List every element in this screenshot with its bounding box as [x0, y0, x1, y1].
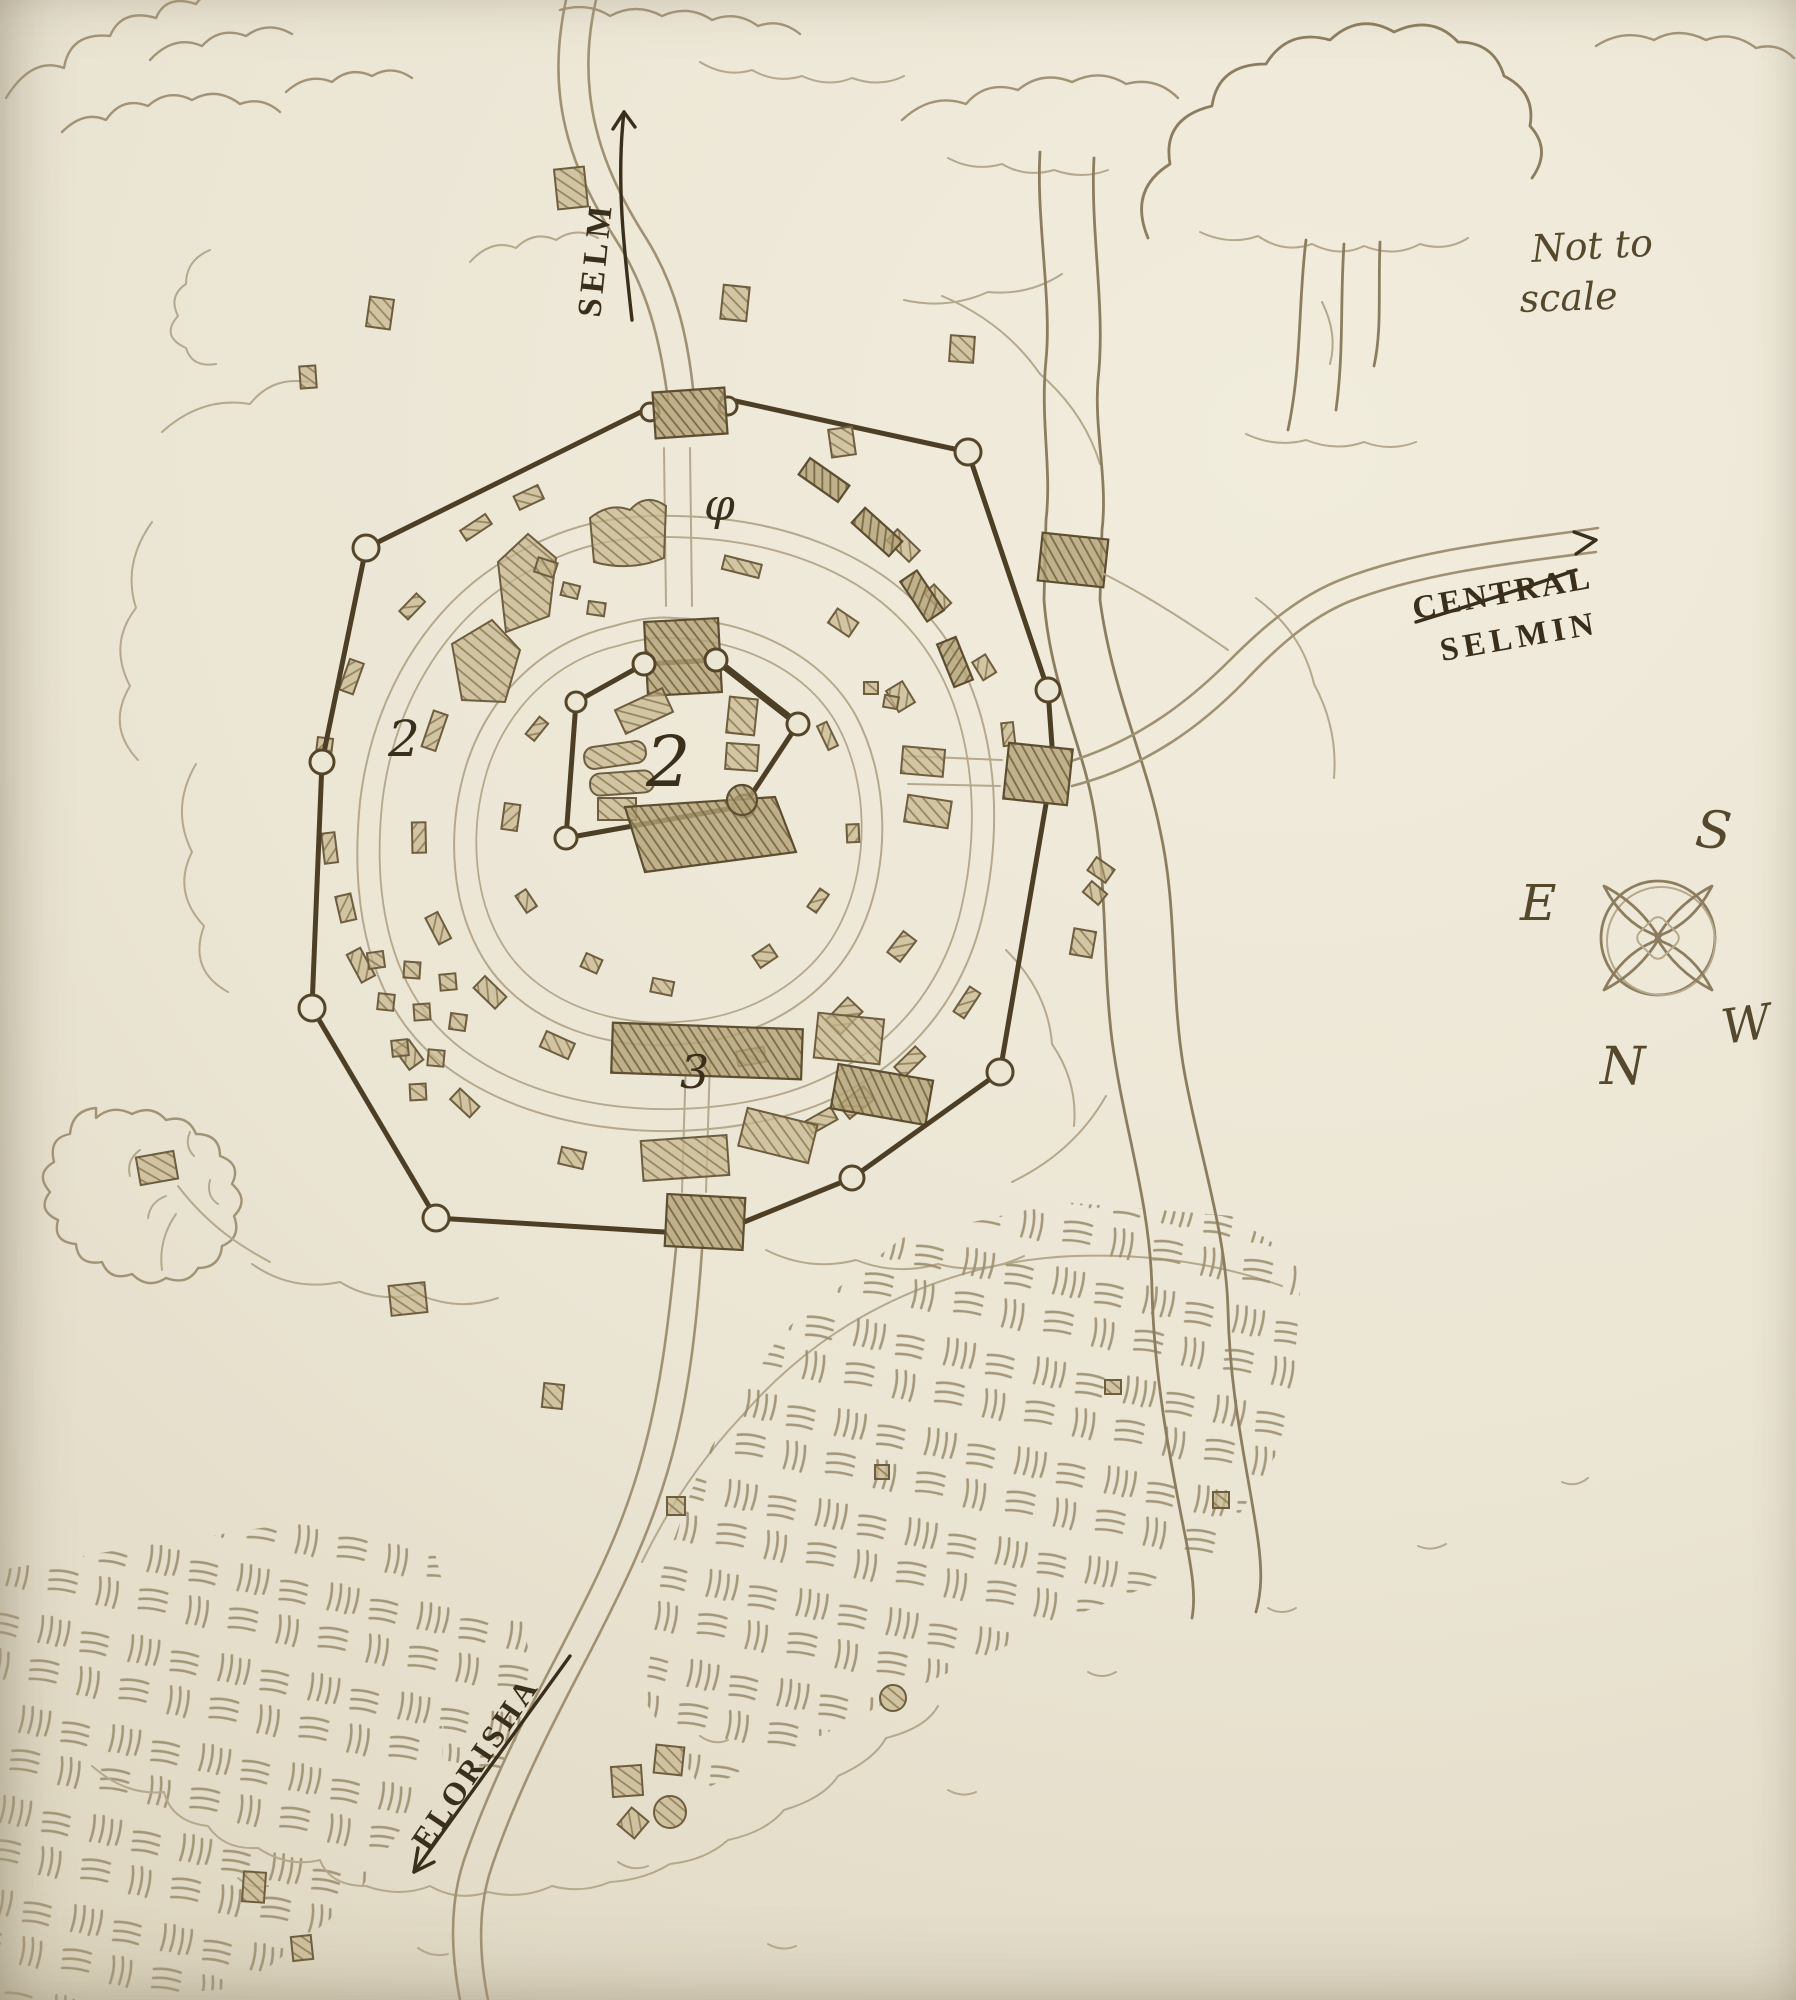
- building: [291, 1935, 313, 1961]
- building: [526, 717, 548, 741]
- building: [894, 1046, 925, 1077]
- building: [514, 485, 544, 510]
- compass-north-label: N: [1598, 1037, 1647, 1097]
- large-tree-top-right: [1142, 24, 1542, 447]
- district-marker-south: 3: [680, 1045, 709, 1099]
- building: [864, 682, 878, 694]
- building: [425, 912, 451, 945]
- building: [242, 1871, 266, 1902]
- building: [501, 803, 520, 831]
- building: [1087, 857, 1114, 883]
- building: [542, 1383, 564, 1409]
- building: [410, 1084, 427, 1101]
- building: [389, 1282, 428, 1316]
- building: [1070, 928, 1096, 957]
- round-hut: [654, 1796, 686, 1828]
- building: [828, 608, 858, 636]
- compass-south-label: S: [1693, 799, 1735, 862]
- building: [972, 654, 996, 680]
- building: [136, 1151, 178, 1185]
- not-to-scale-line1: Not to: [1529, 221, 1654, 271]
- building: [412, 822, 426, 853]
- building: [366, 296, 394, 329]
- building: [321, 832, 338, 864]
- building: [1105, 1380, 1121, 1394]
- bridge: [1038, 533, 1109, 588]
- building: [422, 711, 448, 751]
- building: [515, 889, 536, 913]
- east-road-arrowhead: [1574, 532, 1596, 554]
- selm-label-text: SELM: [571, 199, 620, 319]
- building: [399, 593, 425, 619]
- district-marker-north: φ: [704, 480, 735, 531]
- district-marker-center: 2: [645, 721, 691, 803]
- south-gate: [665, 1194, 746, 1250]
- not-to-scale-line2: scale: [1519, 274, 1619, 321]
- north-road-label: SELM: [571, 112, 635, 320]
- compass-east-label: E: [1519, 874, 1557, 932]
- round-hut: [880, 1685, 906, 1711]
- building: [1213, 1492, 1229, 1508]
- map-canvas: S E N W Not to scale SELM CENTRAL SELMIN…: [0, 0, 1796, 2000]
- building: [817, 722, 838, 750]
- building: [949, 335, 975, 363]
- building: [427, 1049, 444, 1066]
- building: [846, 824, 859, 842]
- building: [450, 1089, 479, 1118]
- east-gate: [1003, 743, 1073, 805]
- compass-west-label: W: [1718, 993, 1778, 1056]
- building: [654, 1745, 685, 1776]
- building: [752, 945, 777, 968]
- building: [335, 894, 356, 923]
- building: [391, 1039, 409, 1057]
- building: [474, 976, 507, 1009]
- building: [558, 1147, 586, 1169]
- walled-city: [299, 388, 1073, 1250]
- building: [449, 1013, 467, 1031]
- compass-rose: S E N W: [1519, 799, 1778, 1097]
- farm-fields: [0, 1202, 1302, 2000]
- building: [367, 951, 385, 969]
- building: [807, 888, 828, 912]
- building: [439, 973, 456, 990]
- building: [828, 426, 856, 457]
- building: [611, 1765, 643, 1797]
- building: [403, 961, 420, 978]
- roads: [453, 0, 1598, 2000]
- building: [413, 1003, 430, 1020]
- building: [887, 931, 916, 962]
- building: [667, 1497, 685, 1515]
- building: [299, 365, 316, 388]
- building: [720, 285, 749, 322]
- building: [953, 987, 980, 1019]
- building: [618, 1808, 649, 1839]
- building: [722, 555, 762, 578]
- building: [650, 978, 674, 996]
- building: [883, 695, 899, 709]
- lone-tree-left: [43, 1108, 270, 1283]
- building: [875, 1465, 889, 1479]
- building: [540, 1031, 575, 1059]
- building: [581, 953, 603, 974]
- hand-drawn-map-page: S E N W Not to scale SELM CENTRAL SELMIN…: [0, 0, 1796, 2000]
- building: [460, 514, 492, 541]
- district-marker-west: 2: [387, 710, 420, 768]
- building: [377, 993, 395, 1011]
- north-gate: [652, 388, 727, 439]
